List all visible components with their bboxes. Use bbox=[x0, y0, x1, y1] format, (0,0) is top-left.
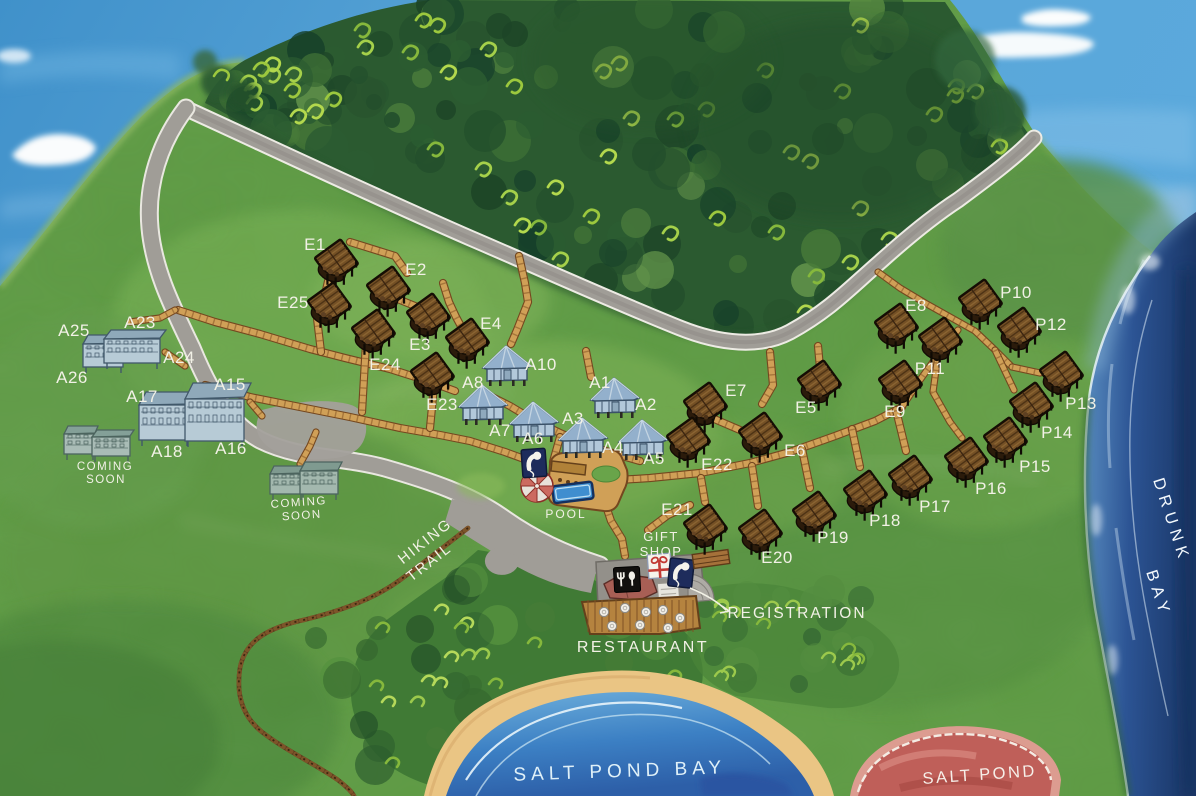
svg-text:P11: P11 bbox=[915, 359, 946, 378]
svg-text:E8: E8 bbox=[905, 296, 927, 315]
svg-text:E2: E2 bbox=[405, 260, 427, 279]
svg-text:A2: A2 bbox=[635, 395, 657, 414]
svg-text:P13: P13 bbox=[1065, 394, 1097, 413]
svg-text:E5: E5 bbox=[795, 398, 817, 417]
svg-text:E6: E6 bbox=[784, 441, 806, 460]
svg-text:A17: A17 bbox=[126, 387, 158, 406]
svg-text:P17: P17 bbox=[919, 497, 951, 516]
svg-text:A5: A5 bbox=[643, 449, 665, 468]
svg-text:P12: P12 bbox=[1035, 315, 1067, 334]
svg-text:A18: A18 bbox=[151, 442, 183, 461]
svg-text:P15: P15 bbox=[1019, 457, 1051, 476]
svg-text:E23: E23 bbox=[426, 395, 458, 414]
svg-text:A4: A4 bbox=[602, 438, 624, 457]
svg-text:E21: E21 bbox=[661, 500, 693, 519]
svg-text:A7: A7 bbox=[489, 421, 511, 440]
svg-text:P16: P16 bbox=[975, 479, 1007, 498]
svg-text:RESTAURANT: RESTAURANT bbox=[577, 639, 709, 656]
svg-text:E4: E4 bbox=[480, 314, 502, 333]
svg-text:E22: E22 bbox=[701, 455, 733, 474]
svg-text:A15: A15 bbox=[214, 375, 246, 394]
svg-text:E1: E1 bbox=[304, 235, 326, 254]
svg-text:A25: A25 bbox=[58, 321, 90, 340]
svg-text:A16: A16 bbox=[215, 439, 247, 458]
svg-text:SOON: SOON bbox=[86, 474, 126, 486]
svg-text:E25: E25 bbox=[277, 293, 309, 312]
svg-text:REGISTRATION: REGISTRATION bbox=[727, 605, 866, 622]
svg-text:A8: A8 bbox=[462, 373, 484, 392]
svg-text:A1: A1 bbox=[589, 373, 611, 392]
svg-text:A26: A26 bbox=[56, 368, 88, 387]
svg-text:A10: A10 bbox=[525, 355, 557, 374]
svg-text:E7: E7 bbox=[725, 381, 747, 400]
svg-text:COMING: COMING bbox=[77, 461, 133, 473]
svg-text:POOL: POOL bbox=[545, 507, 586, 521]
svg-text:E3: E3 bbox=[409, 335, 431, 354]
svg-text:A24: A24 bbox=[163, 348, 195, 367]
svg-text:A6: A6 bbox=[522, 429, 544, 448]
svg-text:P19: P19 bbox=[817, 528, 849, 547]
svg-text:A3: A3 bbox=[562, 409, 584, 428]
svg-text:P10: P10 bbox=[1000, 283, 1032, 302]
svg-text:SHOP: SHOP bbox=[640, 544, 683, 559]
svg-text:E9: E9 bbox=[884, 402, 906, 421]
svg-text:P14: P14 bbox=[1041, 423, 1073, 442]
svg-text:P18: P18 bbox=[869, 511, 901, 530]
svg-text:GIFT: GIFT bbox=[643, 529, 679, 544]
svg-text:A23: A23 bbox=[124, 313, 156, 332]
svg-text:E20: E20 bbox=[761, 548, 793, 567]
svg-text:E24: E24 bbox=[369, 355, 401, 374]
